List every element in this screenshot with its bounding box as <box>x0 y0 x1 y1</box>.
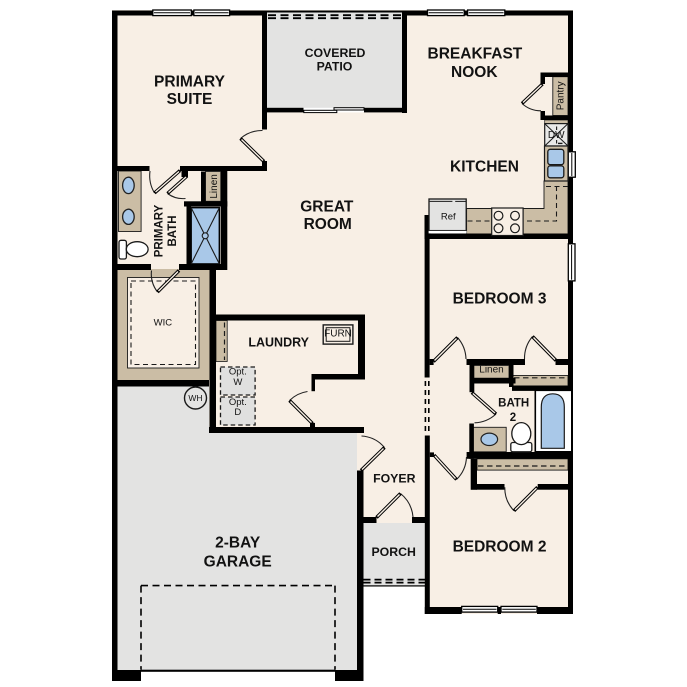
svg-text:WH: WH <box>188 393 202 403</box>
svg-text:BEDROOM 2: BEDROOM 2 <box>453 538 547 555</box>
svg-text:D: D <box>234 407 241 418</box>
svg-text:FURN: FURN <box>324 329 352 340</box>
svg-text:BATH: BATH <box>498 398 529 410</box>
svg-text:PRIMARY: PRIMARY <box>154 74 226 91</box>
svg-text:Opt.: Opt. <box>229 367 247 378</box>
svg-text:Ref: Ref <box>441 212 456 223</box>
svg-text:Opt.: Opt. <box>229 397 247 408</box>
svg-text:GREAT: GREAT <box>300 199 354 216</box>
svg-text:2: 2 <box>510 412 516 424</box>
svg-text:ROOM: ROOM <box>304 216 352 233</box>
svg-text:COVERED: COVERED <box>305 46 366 60</box>
svg-text:KITCHEN: KITCHEN <box>450 159 519 176</box>
svg-text:WIC: WIC <box>154 317 173 328</box>
svg-text:BATH: BATH <box>167 215 179 246</box>
svg-text:BREAKFAST: BREAKFAST <box>428 46 523 63</box>
svg-text:Linen: Linen <box>209 174 220 198</box>
svg-text:Pantry: Pantry <box>556 81 567 110</box>
svg-text:2-BAY: 2-BAY <box>215 534 261 551</box>
svg-text:PORCH: PORCH <box>371 545 416 559</box>
svg-text:DW: DW <box>548 130 565 141</box>
svg-text:PATIO: PATIO <box>317 60 353 74</box>
svg-text:SUITE: SUITE <box>167 91 213 108</box>
svg-text:BEDROOM 3: BEDROOM 3 <box>453 290 547 307</box>
svg-text:FOYER: FOYER <box>373 471 415 485</box>
svg-text:PRIMARY: PRIMARY <box>154 204 166 257</box>
svg-text:LAUNDRY: LAUNDRY <box>248 336 309 350</box>
svg-text:NOOK: NOOK <box>451 64 498 81</box>
svg-text:GARAGE: GARAGE <box>204 554 272 571</box>
svg-text:W: W <box>233 377 242 388</box>
svg-text:Linen: Linen <box>479 365 503 376</box>
